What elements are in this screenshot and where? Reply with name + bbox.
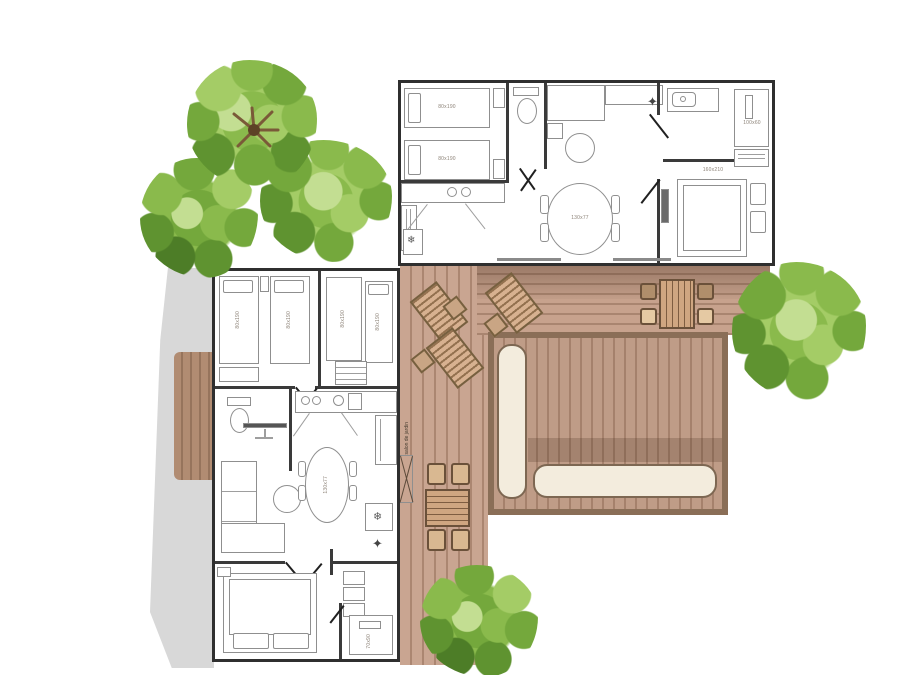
dining-table: 130x77 — [547, 183, 613, 255]
burner — [301, 396, 310, 405]
bed-size-label: 80x190 — [236, 311, 242, 329]
door-threshold — [613, 258, 671, 261]
tree — [732, 262, 866, 400]
nightstand — [217, 567, 231, 577]
outdoor-chair — [697, 283, 714, 300]
wall — [315, 386, 397, 389]
unit-bottom: 80x190 80x190 80x190 80x190 — [212, 268, 400, 662]
table-size-label: 130x77 — [571, 216, 589, 222]
bed-pillow — [233, 633, 269, 649]
toilet-tank — [227, 397, 251, 406]
washer-column — [343, 571, 365, 585]
coffee-table — [273, 485, 301, 513]
sofa-return — [221, 523, 285, 553]
bed-pillow — [368, 284, 389, 295]
sofa-line — [222, 521, 256, 522]
cabinet-door-swing — [341, 412, 358, 436]
outdoor-chair — [451, 463, 470, 485]
bed-pillow — [273, 633, 309, 649]
wall — [215, 386, 295, 389]
bed-size-label: 80x190 — [341, 310, 347, 328]
side-table — [565, 133, 595, 163]
kitchen-sink — [333, 395, 344, 406]
wall — [663, 159, 734, 162]
wall — [289, 389, 292, 471]
dining-chair — [349, 461, 357, 477]
nightstand — [750, 211, 766, 233]
oven — [348, 393, 362, 410]
lounge-cushion-vertical — [497, 344, 527, 499]
door-threshold — [497, 258, 561, 261]
lounge-shadow-band — [528, 438, 722, 462]
wall — [318, 271, 321, 386]
mattress — [683, 185, 741, 251]
tall-cabinet — [375, 415, 397, 465]
lounge-cushion-horizontal — [533, 464, 717, 498]
dining-chair — [298, 461, 306, 477]
vent-line — [738, 158, 765, 159]
door-leaf — [649, 114, 669, 139]
shower-size-label: 70x90 — [367, 631, 373, 651]
tv-stand — [264, 429, 266, 437]
vent-line — [738, 154, 765, 155]
sink-drain — [680, 96, 686, 102]
bed-pillow — [223, 280, 253, 293]
cabinet-door-swing — [465, 203, 485, 229]
room-size-label: 160x210 — [691, 168, 735, 174]
outdoor-chair — [451, 529, 470, 551]
outdoor-table — [659, 279, 695, 329]
outdoor-chair — [640, 308, 657, 325]
dining-chair — [349, 485, 357, 501]
wall — [657, 83, 660, 115]
dining-table: 130x77 — [305, 447, 349, 523]
bed-size-label: 80x190 — [287, 311, 293, 329]
dining-chair — [298, 485, 306, 501]
kitchen-sink — [461, 187, 471, 197]
dining-chair — [611, 223, 620, 242]
sofa-line — [222, 491, 256, 492]
nightstand — [493, 159, 505, 179]
tv-unit — [661, 189, 669, 223]
wall — [333, 561, 397, 564]
wall — [330, 549, 333, 575]
outdoor-chair — [427, 529, 446, 551]
cabinet-line — [380, 419, 381, 461]
outdoor-chair — [640, 283, 657, 300]
kitchen-block — [547, 123, 563, 139]
dining-chair — [540, 223, 549, 242]
kitchen-block — [547, 85, 605, 121]
toilet — [517, 98, 537, 124]
wall — [506, 83, 509, 183]
shelf — [260, 276, 269, 292]
step-line — [336, 367, 366, 368]
lounge-area — [488, 332, 728, 515]
kitchen-counter — [295, 391, 397, 413]
low-cabinet — [219, 367, 259, 382]
toilet-tank — [513, 87, 539, 96]
tv-desk — [243, 423, 287, 428]
shower-tray — [359, 621, 381, 629]
tv-stand-base — [255, 437, 273, 439]
single-bed: 80x190 — [326, 277, 362, 361]
fridge-icon: ❄ — [373, 512, 382, 523]
site-plan: salon de jardin 80x190 80x190 — [0, 0, 900, 675]
bed-pillow — [408, 145, 421, 175]
bed-size-label: 80x190 — [438, 105, 456, 111]
kitchen-sink — [447, 187, 457, 197]
table-size-label: 130x77 — [324, 476, 330, 494]
tree-branches-icon — [222, 100, 286, 156]
step-line — [336, 379, 366, 380]
burner — [312, 396, 321, 405]
ceiling-light-icon: ✦ — [372, 537, 383, 550]
fridge-icon: ❄ — [407, 236, 415, 246]
outdoor-chair — [697, 308, 714, 325]
washer-column — [343, 587, 365, 601]
bed-pillow — [408, 93, 421, 123]
outdoor-chair — [427, 463, 446, 485]
dining-chair — [540, 195, 549, 214]
step-line — [336, 373, 366, 374]
wall — [215, 561, 285, 564]
bed-size-label: 80x190 — [376, 313, 382, 331]
bed-pillow — [274, 280, 304, 293]
nightstand — [750, 183, 766, 205]
toilet — [230, 408, 249, 433]
tree — [420, 565, 538, 675]
unit-top: 80x190 80x190 ❄ 130x77 — [398, 80, 775, 266]
wardrobe-size-label: 100x60 — [737, 121, 767, 127]
dining-chair — [611, 195, 620, 214]
cabinet-door-swing — [293, 413, 310, 437]
outdoor-table — [425, 489, 470, 527]
deck-left-mini — [174, 352, 212, 480]
nightstand — [493, 88, 505, 108]
bed-size-label: 80x190 — [438, 157, 456, 163]
mattress — [229, 579, 311, 635]
wall — [657, 179, 660, 263]
wardrobe-shelf — [745, 95, 753, 119]
